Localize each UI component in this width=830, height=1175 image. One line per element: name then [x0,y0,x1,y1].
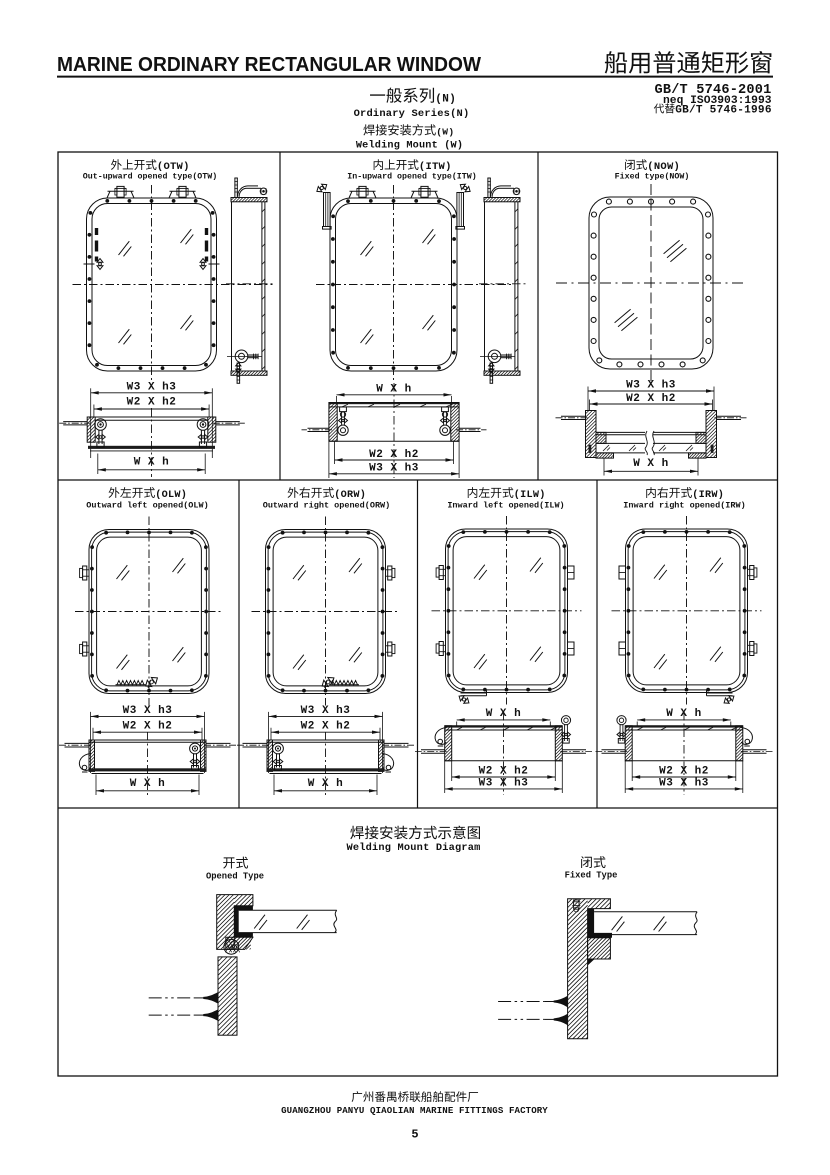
svg-text:Welding Mount (W): Welding Mount (W) [356,140,463,152]
svg-text:Inward left opened(ILW): Inward left opened(ILW) [447,501,564,511]
svg-text:W2 X h2: W2 X h2 [369,449,419,461]
svg-text:W2 X h2: W2 X h2 [479,766,529,778]
svg-text:(ORW): (ORW) [334,489,366,501]
svg-text:W X h: W X h [633,458,669,470]
svg-text:(ILW): (ILW) [514,489,546,501]
svg-text:W3 X h3: W3 X h3 [479,777,529,789]
svg-text:W X h: W X h [134,457,170,469]
svg-text:W3 X h3: W3 X h3 [369,463,419,475]
svg-text:W3 X h3: W3 X h3 [659,777,709,789]
svg-text:Fixed type(NOW): Fixed type(NOW) [615,172,690,182]
svg-text:(W): (W) [436,127,454,138]
svg-text:W3 X h3: W3 X h3 [123,705,173,717]
svg-text:W2 X h2: W2 X h2 [301,720,351,732]
svg-text:(NOW): (NOW) [647,161,680,173]
svg-text:Out-upward opened type(OTW): Out-upward opened type(OTW) [83,172,217,182]
svg-text:(OTW): (OTW) [157,161,190,173]
svg-text:W3 X h3: W3 X h3 [626,379,676,391]
svg-text:Opened Type: Opened Type [206,872,264,882]
svg-text:W2 X h2: W2 X h2 [123,720,173,732]
svg-text:MARINE ORDINARY RECTANGULAR WI: MARINE ORDINARY RECTANGULAR WINDOW [57,54,482,76]
svg-text:Inward right opened(IRW): Inward right opened(IRW) [623,501,745,511]
svg-text:(IRW): (IRW) [692,489,724,501]
svg-text:W2 X h2: W2 X h2 [127,397,177,409]
svg-text:W3 X h3: W3 X h3 [127,382,177,394]
svg-text:Outward right opened(ORW): Outward right opened(ORW) [263,501,391,511]
svg-text:GUANGZHOU PANYU QIAOLIAN MARIN: GUANGZHOU PANYU QIAOLIAN MARINE FITTINGS… [281,1105,548,1116]
svg-text:(N): (N) [435,94,456,106]
svg-text:W2 X h2: W2 X h2 [626,393,676,405]
svg-text:W2 X h2: W2 X h2 [659,766,709,778]
svg-text:Outward left opened(OLW): Outward left opened(OLW) [86,501,208,511]
svg-text:Welding Mount Diagram: Welding Mount Diagram [347,842,481,854]
svg-text:In-upward opened type(ITW): In-upward opened type(ITW) [347,172,476,182]
svg-text:(OLW): (OLW) [155,489,187,501]
svg-text:W3 X h3: W3 X h3 [301,705,351,717]
svg-text:(ITW): (ITW) [419,161,452,173]
svg-text:W X h: W X h [308,778,344,790]
svg-text:Fixed Type: Fixed Type [565,871,618,881]
svg-text:W X h: W X h [130,778,166,790]
svg-text:Ordinary Series(N): Ordinary Series(N) [354,108,470,120]
svg-text:5: 5 [411,1128,418,1142]
svg-text:GB/T 5746-1996: GB/T 5746-1996 [675,105,772,117]
